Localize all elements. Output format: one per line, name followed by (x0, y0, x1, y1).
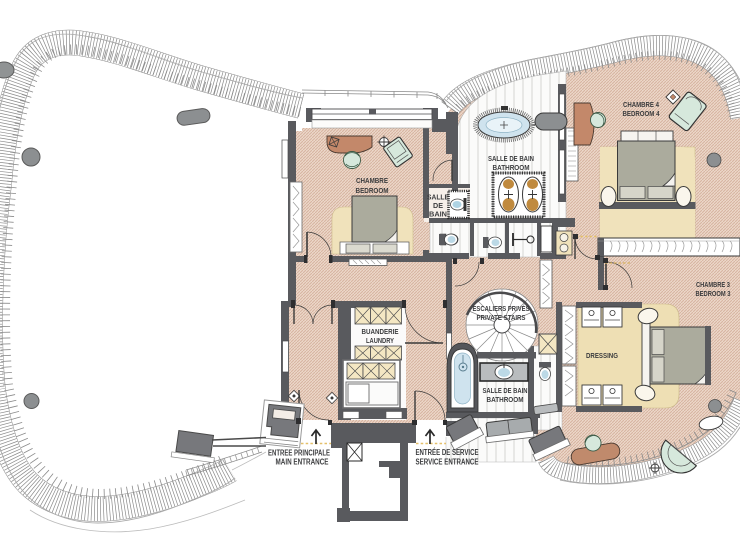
svg-text:BUANDERIE: BUANDERIE (362, 329, 399, 336)
svg-text:DRESSING: DRESSING (586, 353, 618, 360)
svg-text:CHAMBRE 4: CHAMBRE 4 (623, 102, 659, 109)
svg-text:BEDROOM 3: BEDROOM 3 (696, 291, 731, 298)
svg-text:DE: DE (433, 203, 443, 210)
svg-text:SERVICE ENTRANCE: SERVICE ENTRANCE (416, 458, 480, 467)
svg-text:ENTREE PRINCIPALE: ENTREE PRINCIPALE (268, 449, 330, 458)
svg-text:BEDROOM 4: BEDROOM 4 (623, 111, 660, 118)
svg-text:BAIN: BAIN (429, 212, 447, 219)
svg-text:MAIN ENTRANCE: MAIN ENTRANCE (276, 458, 330, 467)
svg-text:SALLE DE BAIN: SALLE DE BAIN (483, 388, 528, 395)
svg-text:SALLE: SALLE (427, 195, 449, 202)
svg-text:CHAMBRE 3: CHAMBRE 3 (696, 282, 730, 289)
svg-text:BATHROOM: BATHROOM (487, 397, 524, 404)
svg-text:BATHROOM: BATHROOM (493, 165, 530, 172)
svg-text:ESCALIERS PRIVÉS: ESCALIERS PRIVÉS (473, 304, 530, 313)
svg-text:SALLE DE BAIN: SALLE DE BAIN (488, 156, 534, 163)
svg-text:ENTRÉE DE SERVICE: ENTRÉE DE SERVICE (416, 448, 480, 457)
svg-text:BEDROOM: BEDROOM (356, 188, 389, 195)
svg-text:CHAMBRE: CHAMBRE (356, 178, 388, 185)
svg-text:PRIVATE STAIRS: PRIVATE STAIRS (477, 315, 526, 322)
svg-text:LAUNDRY: LAUNDRY (366, 338, 394, 345)
